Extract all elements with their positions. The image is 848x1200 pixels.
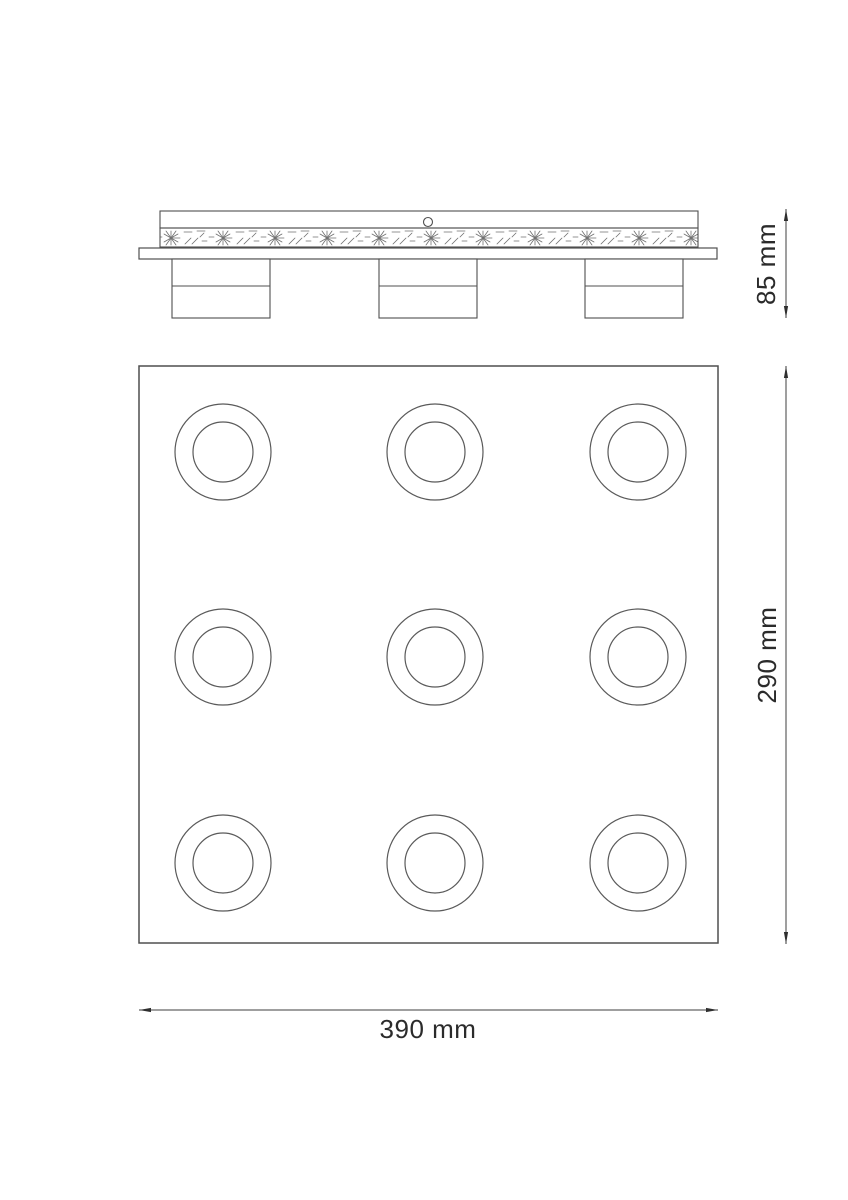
cable-hole-icon xyxy=(424,218,433,227)
dimension-width-390: 390 mm xyxy=(139,1008,718,1044)
dimension-height-85: 85 mm xyxy=(751,209,788,318)
arrow-up-icon xyxy=(784,366,788,378)
arrow-down-icon xyxy=(784,306,788,318)
spot-housing-3 xyxy=(585,259,683,318)
canopy-hatch-band xyxy=(160,228,698,247)
arrow-right-icon xyxy=(706,1008,718,1012)
dimension-label-290mm: 290 mm xyxy=(752,607,782,704)
front-plate-view xyxy=(139,366,718,943)
spot-housing-1 xyxy=(172,259,270,318)
drawing-canvas: 85 mm xyxy=(0,0,848,1200)
spot-housing-2 xyxy=(379,259,477,318)
dimension-label-85mm: 85 mm xyxy=(751,223,781,305)
mounting-plate xyxy=(139,248,717,259)
dimension-label-390mm: 390 mm xyxy=(380,1014,477,1044)
dimension-height-290: 290 mm xyxy=(752,366,788,944)
arrow-left-icon xyxy=(139,1008,151,1012)
arrow-up-icon xyxy=(784,209,788,221)
arrow-down-icon xyxy=(784,932,788,944)
light-plate xyxy=(139,366,718,943)
side-profile-view xyxy=(139,211,717,318)
technical-drawing: 85 mm xyxy=(0,0,848,1200)
